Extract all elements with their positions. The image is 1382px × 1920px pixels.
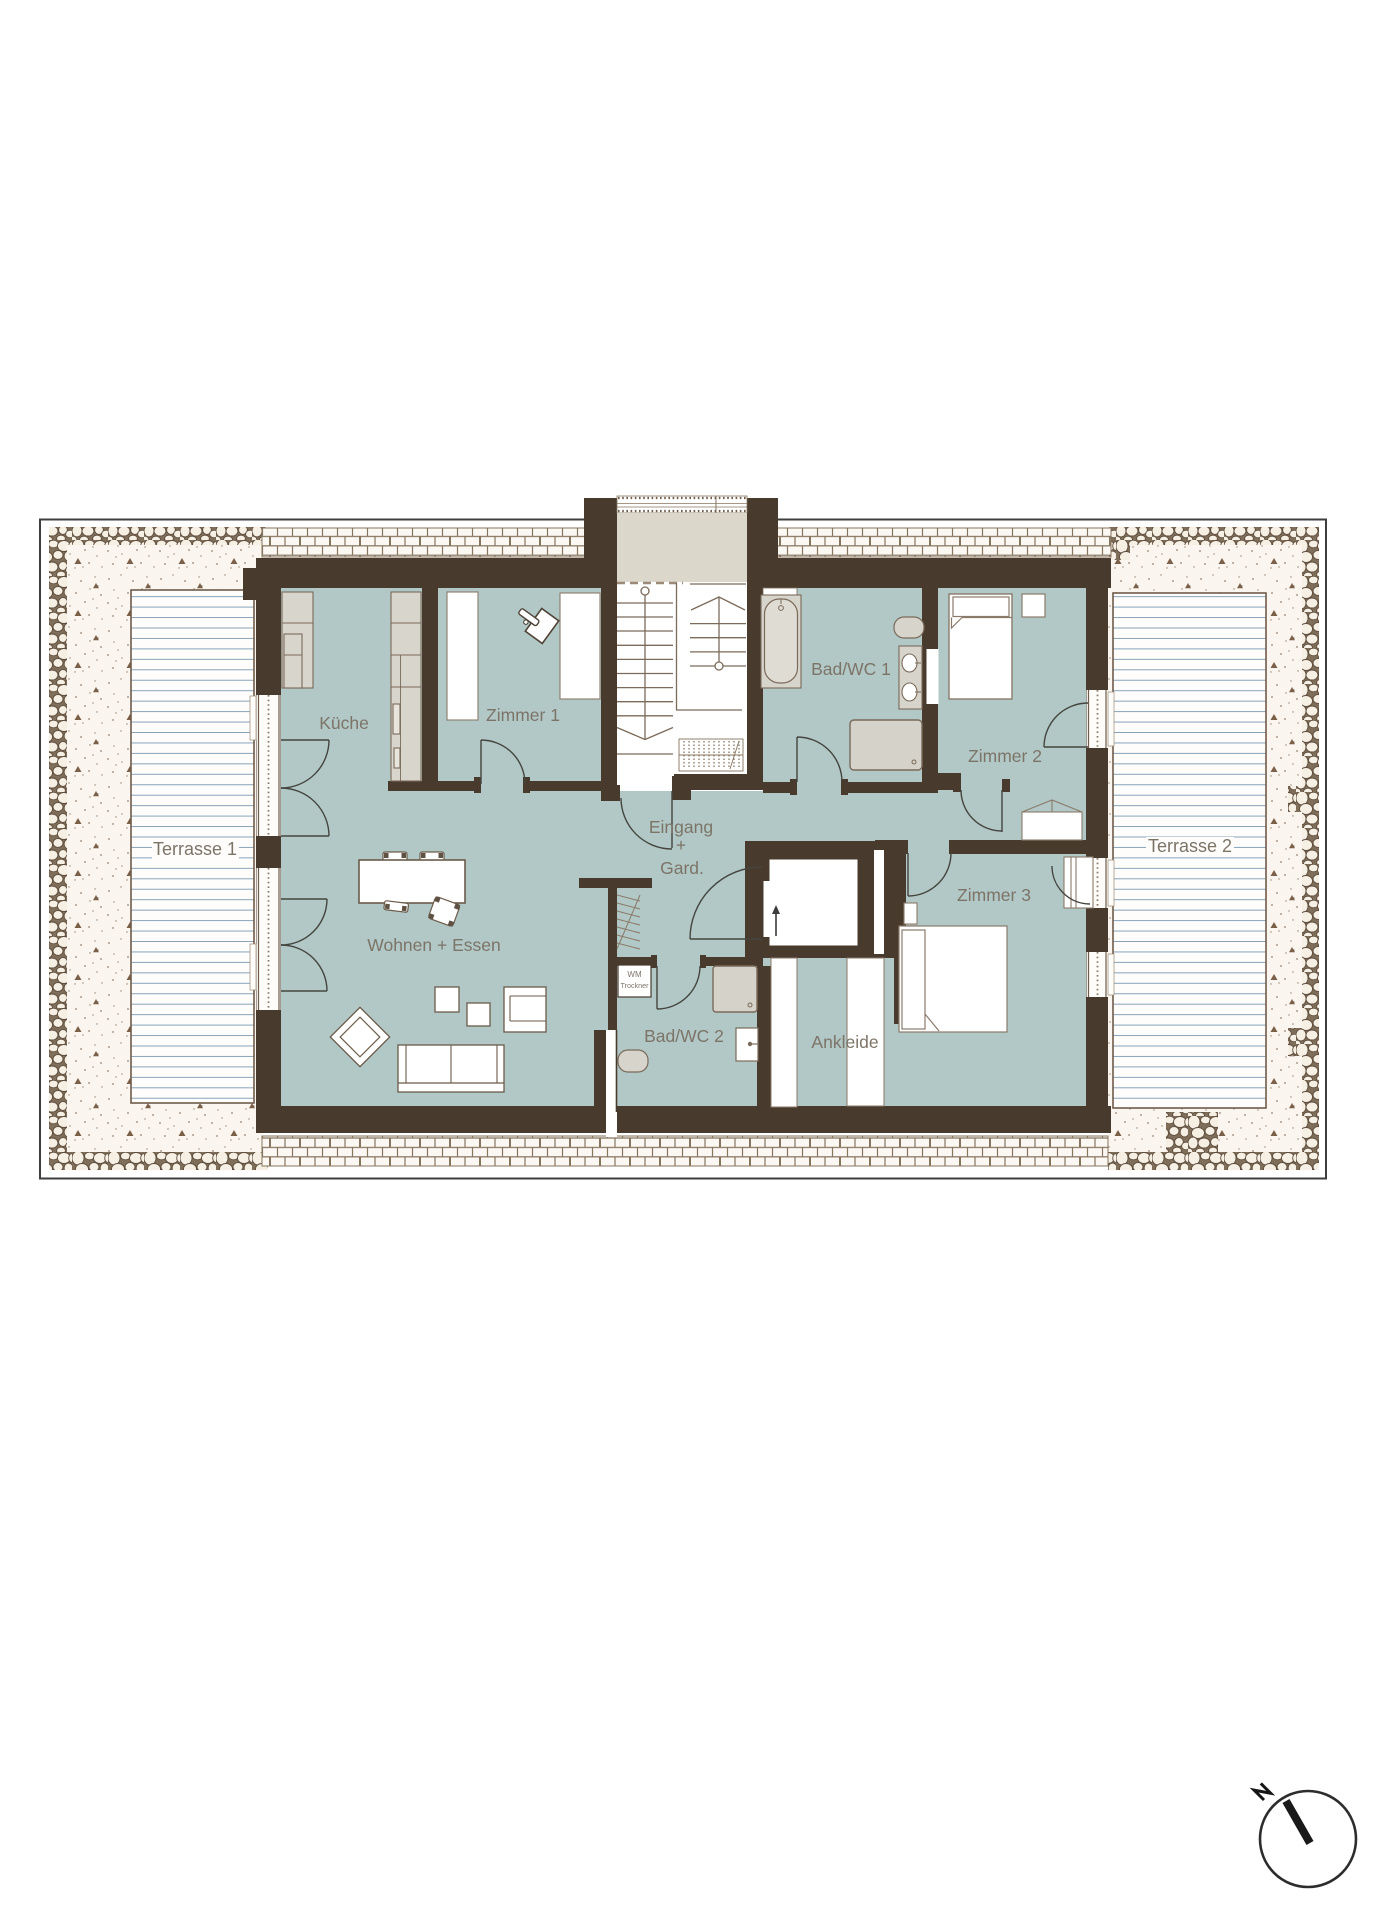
svg-text:Küche: Küche — [319, 713, 369, 733]
svg-text:+: + — [676, 835, 686, 855]
svg-text:Ankleide: Ankleide — [811, 1032, 878, 1052]
svg-text:Trockner: Trockner — [620, 981, 649, 990]
svg-text:Zimmer 3: Zimmer 3 — [957, 885, 1031, 905]
svg-text:Zimmer 1: Zimmer 1 — [486, 705, 560, 725]
svg-text:Bad/WC 2: Bad/WC 2 — [644, 1026, 724, 1046]
svg-text:WM: WM — [627, 970, 642, 979]
svg-text:Terrasse 2: Terrasse 2 — [1148, 836, 1232, 856]
svg-text:Bad/WC 1: Bad/WC 1 — [811, 659, 891, 679]
svg-text:Zimmer 2: Zimmer 2 — [968, 746, 1042, 766]
svg-text:Terrasse 1: Terrasse 1 — [153, 839, 237, 859]
svg-text:Gard.: Gard. — [660, 858, 704, 878]
svg-text:Wohnen + Essen: Wohnen + Essen — [367, 935, 500, 955]
svg-text:Eingang: Eingang — [649, 817, 713, 837]
